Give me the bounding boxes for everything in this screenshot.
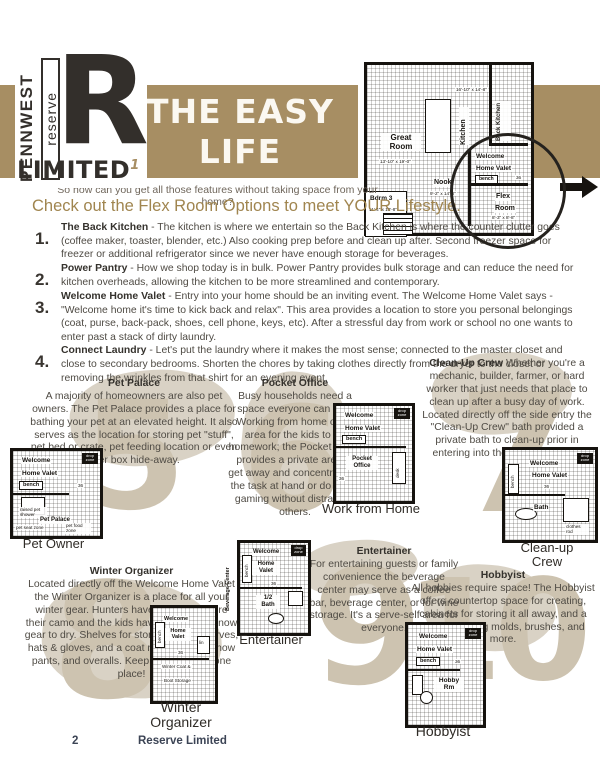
plan-home-valet: Home Valet (252, 561, 280, 575)
kitchen-island (425, 99, 451, 153)
plan-home-valet: Home Valet (416, 646, 453, 653)
brochure-page: THE EASY LIFE PENNWEST reserve R LIMITED… (0, 0, 600, 772)
item-number: 3. (35, 290, 61, 345)
option-title: Hobbyist (410, 570, 596, 583)
page-number: 2 (72, 735, 78, 747)
floor-plan-entertainer: drop zone Welcome Home Valet bench 36 1/… (237, 540, 311, 636)
wall (336, 446, 406, 448)
plan-beverage-center: Beverage Center (224, 556, 238, 622)
plan-welcome: Welcome (529, 460, 559, 467)
plan-home-valet: Home Valet (165, 628, 191, 641)
wall (240, 587, 302, 589)
plan-bench: bench (243, 559, 250, 577)
item-number: 2. (35, 262, 61, 290)
plan-welcome: Welcome (344, 412, 374, 419)
plan-size: 36 (177, 650, 184, 655)
logo-superscript: 1 (130, 158, 140, 173)
option-title: Entertainer (308, 546, 460, 559)
plan-welcome: Welcome (252, 549, 280, 556)
plan-size: 36 (77, 483, 84, 488)
kitchen-dims: 16'-10" x 14'-8" (455, 87, 488, 92)
plan-bench: bench (19, 481, 43, 490)
sink (420, 691, 433, 704)
item-text: Power Pantry - How we shop today is in b… (61, 262, 575, 290)
plan-size: 36 (454, 659, 461, 664)
wall (153, 658, 209, 660)
list-item: 2. Power Pantry - How we shop today is i… (35, 262, 575, 290)
drop-zone: drop zone (577, 453, 593, 464)
option-text: Whether you're a mechanic, builder, farm… (422, 358, 592, 459)
wall (505, 494, 565, 496)
plan-desk: desk (394, 456, 401, 478)
toilet (268, 613, 284, 624)
plan-caption-clean-up-crew: Clean-up Crew (498, 541, 596, 568)
cabinet-box (288, 591, 303, 606)
plan-pet-food-zone: pet food zone (65, 523, 91, 534)
plan-winter-coat: Winter Coat & (161, 664, 192, 669)
room-label-great-room: Great Room (381, 133, 421, 151)
plan-caption-pet-owner: Pet Owner (6, 537, 101, 551)
option-title: Pocket Office (228, 378, 362, 391)
plan-pocket-office: Pocket Office (346, 456, 378, 470)
plan-home-valet: Home Valet (21, 470, 58, 477)
plan-caption-winter-organizer: Winter Organizer (134, 700, 228, 729)
pennwest-reserve-logo: PENNWEST reserve R LIMITED1 (15, 28, 147, 188)
item-number: 1. (35, 221, 61, 262)
plan-size: 36 (270, 581, 277, 586)
plan-size: 36 (543, 484, 550, 489)
plan-welcome: Welcome (163, 616, 189, 622)
plan-linen: lin (198, 640, 205, 645)
arrow-right-icon (560, 176, 600, 198)
title-line1: THE EASY (140, 92, 340, 132)
floor-plan-winter-organizer: Welcome Home Valet bench 36 lin Winter C… (150, 605, 218, 704)
shower-box (563, 498, 589, 522)
plan-caption-work-from-home: Work from Home (321, 502, 421, 516)
drop-zone: drop zone (465, 628, 481, 639)
plan-bench: bench (509, 468, 516, 488)
option-title: Pet Palace (28, 378, 240, 391)
plan-hobby-rm: Hobby Rm (434, 677, 464, 692)
flex-options-heading: Check out the Flex Room Options to meet … (32, 197, 462, 216)
plan-home-valet: Home Valet (344, 425, 381, 432)
plan-bench: bench (156, 625, 163, 643)
plan-bath: Bath (533, 504, 549, 511)
plan-clothes-rod: clothes rod (565, 524, 589, 535)
page-title: THE EASY LIFE (140, 92, 340, 171)
floor-plan-work-from-home: drop zone Welcome Home Valet bench Pocke… (333, 403, 415, 504)
list-item: 3. Welcome Home Valet - Entry into your … (35, 290, 575, 345)
great-room-dims: 13'-10" x 19'-0" (379, 159, 412, 164)
plan-pet-seat-zone: pet seat zone (15, 525, 45, 530)
plan-caption-entertainer: Entertainer (230, 633, 312, 647)
floor-plan-clean-up-crew: drop zone Welcome Home Valet 36 bench Ba… (502, 447, 598, 543)
floor-plan-pet-owner: drop zone Welcome Home Valet bench 36 ra… (10, 448, 103, 539)
plan-bench: bench (342, 435, 366, 444)
plan-boot-storage: Boot Storage (163, 678, 192, 683)
option-clean-up-crew: Clean-Up Crew Whether you're a mechanic,… (418, 358, 596, 461)
floor-plan-hobbyist: drop zone Welcome Home Valet bench 36 Ho… (405, 622, 486, 728)
wall (13, 493, 69, 495)
plan-half-bath: 1/2 Bath (256, 595, 280, 609)
drop-zone: drop zone (394, 408, 410, 419)
plan-caption-hobbyist: Hobbyist (398, 724, 488, 739)
footer-title: Reserve Limited (138, 735, 227, 747)
wall (408, 669, 460, 671)
item-text: Welcome Home Valet - Entry into your hom… (61, 290, 575, 345)
drop-zone: drop zone (82, 453, 98, 464)
plan-welcome: Welcome (21, 457, 51, 464)
drop-zone: drop zone (291, 545, 306, 556)
plan-raised-pet-shower: raised pet shower (19, 507, 47, 518)
plan-bench: bench (416, 657, 440, 666)
plan-size: 36 (338, 476, 345, 481)
plan-welcome: Welcome (418, 633, 448, 640)
plan-home-valet: Home Valet (531, 472, 568, 479)
title-line2: LIFE (140, 132, 340, 172)
logo-limited: LIMITED1 (17, 156, 140, 184)
wall (489, 65, 492, 145)
flex-room-highlight-circle (450, 133, 566, 249)
option-title: Winter Organizer (24, 566, 239, 579)
option-title: Clean-Up Crew (429, 358, 503, 369)
room-label-kitchen: Kitchen (459, 107, 469, 145)
